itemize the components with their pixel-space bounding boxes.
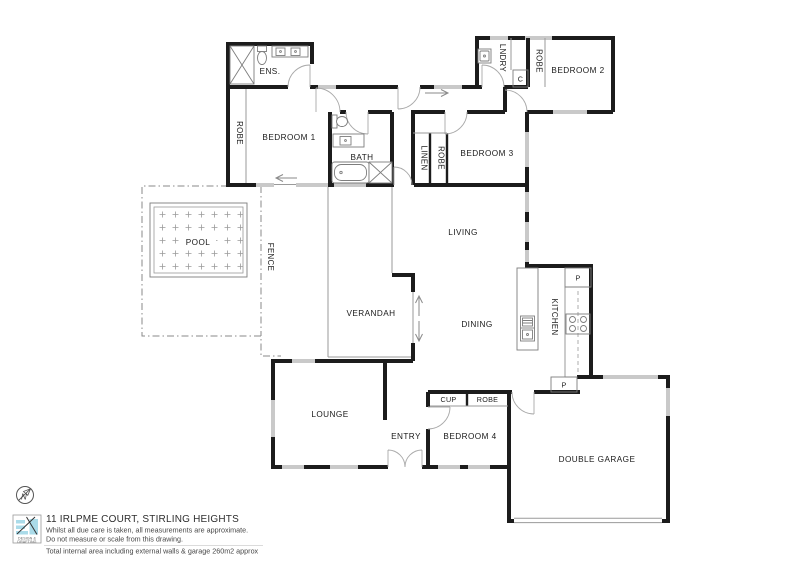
verandah-edges — [328, 187, 413, 357]
toilet-icon — [258, 46, 267, 65]
label-ens: ENS. — [260, 67, 281, 76]
label-robe-bed1: ROBE — [235, 121, 244, 145]
disclaimer-line1: Whilst all due care is taken, all measur… — [46, 526, 248, 535]
label-cup: CUP — [440, 395, 456, 404]
label-bedroom3: BEDROOM 3 — [460, 149, 513, 158]
label-lounge: LOUNGE — [311, 410, 348, 419]
pool-fence — [142, 186, 281, 356]
area-note: Total internal area including external w… — [46, 547, 259, 556]
label-double-garage: DOUBLE GARAGE — [559, 455, 636, 464]
label-robe-bed2: ROBE — [535, 49, 544, 73]
arrow-up-icon — [416, 296, 423, 316]
label-linen: LINEN — [420, 146, 429, 171]
arrow-left-icon — [276, 175, 297, 182]
design-drafting-logo: DESIGN & DRAFTING — [13, 515, 41, 544]
title-block: N DESIGN & DRAFTING 11 IRLPME COURT, STI… — [13, 487, 263, 556]
label-pantry-bottom: P — [561, 381, 566, 390]
label-lndry: LNDRY — [498, 44, 507, 73]
label-bedroom2: BEDROOM 2 — [551, 66, 604, 75]
label-cupboard-c: C — [518, 75, 524, 84]
cooktop-icon — [566, 314, 590, 334]
logo-line2: DRAFTING — [17, 540, 36, 544]
label-bedroom4: BEDROOM 4 — [443, 432, 496, 441]
label-entry: ENTRY — [391, 432, 421, 441]
doors — [274, 65, 662, 523]
room-labels: ENS. ROBE BEDROOM 1 BATH LINEN ROBE BEDR… — [186, 44, 636, 464]
label-living: LIVING — [448, 228, 478, 237]
arrow-down-icon — [416, 321, 423, 341]
toilet-icon — [332, 115, 348, 128]
flow-arrows — [276, 90, 448, 342]
laundry-tub-icon — [478, 49, 491, 63]
label-dining: DINING — [461, 320, 492, 329]
label-verandah: VERANDAH — [346, 309, 395, 318]
kitchen-island — [517, 268, 538, 350]
vanity-icon — [333, 134, 364, 147]
label-pool: POOL — [186, 238, 211, 247]
fixtures — [230, 38, 591, 406]
vanity-icon — [272, 46, 308, 57]
label-fence: FENCE — [266, 243, 275, 271]
north-label: N — [21, 493, 27, 502]
floor-plan-drawing: ENS. ROBE BEDROOM 1 BATH LINEN ROBE BEDR… — [0, 0, 800, 564]
north-compass-icon: N — [17, 487, 34, 504]
arrow-right-icon — [425, 90, 448, 97]
plan-address: 11 IRLPME COURT, STIRLING HEIGHTS — [46, 514, 239, 525]
label-robe-bed3: ROBE — [437, 146, 446, 170]
label-pantry-top: P — [575, 274, 580, 283]
floor-plan-page: ENS. ROBE BEDROOM 1 BATH LINEN ROBE BEDR… — [0, 0, 800, 564]
label-bath: BATH — [350, 153, 373, 162]
disclaimer-line2: Do not measure or scale from this drawin… — [46, 535, 183, 544]
label-robe-bed4: ROBE — [477, 395, 499, 404]
bathtub-icon — [332, 162, 369, 183]
label-kitchen: KITCHEN — [550, 298, 559, 335]
walls — [228, 38, 668, 521]
windows — [256, 38, 668, 467]
label-bedroom1: BEDROOM 1 — [262, 133, 315, 142]
